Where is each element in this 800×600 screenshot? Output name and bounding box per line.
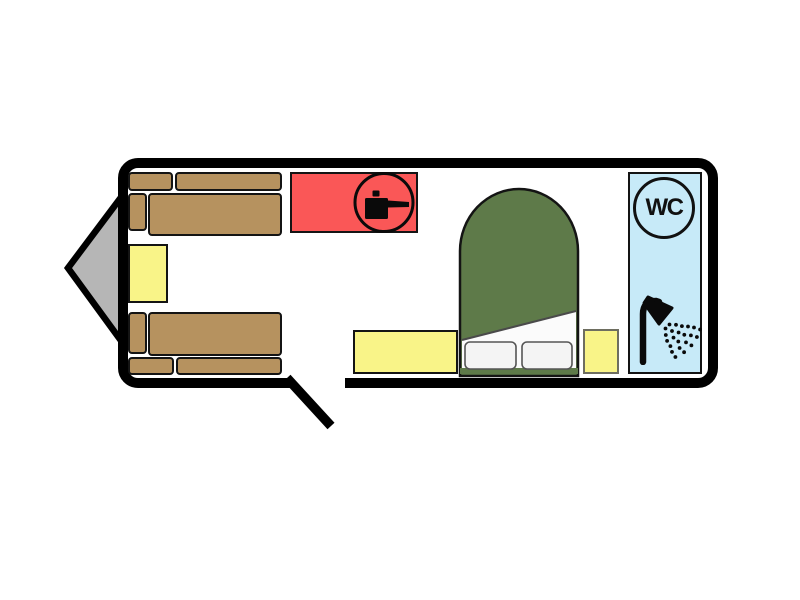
front-sofa-backrest-left — [128, 172, 173, 191]
shower-icon — [632, 293, 704, 365]
front-sofa-backrest-right — [175, 172, 282, 191]
front-sofa-seat — [148, 193, 282, 236]
shower-spray-dots — [664, 323, 702, 359]
rear-sofa-seat — [148, 312, 282, 356]
cooking-pot-icon — [352, 171, 416, 235]
rear-sofa-armrest — [128, 312, 147, 354]
bed-pillow-right — [522, 342, 572, 369]
bedside-wardrobe — [583, 329, 619, 374]
rear-sofa-backrest-right — [176, 357, 282, 375]
bedside-counter — [353, 330, 458, 374]
front-sofa-armrest — [128, 193, 147, 231]
rear-sofa-backrest-left — [128, 357, 174, 375]
wc-badge-icon: WC — [633, 177, 695, 239]
entrance-door-open-icon — [280, 372, 342, 434]
side-cabinet — [128, 244, 168, 303]
caravan-floorplan: WC — [0, 0, 800, 600]
bed-pillow-left — [465, 342, 516, 369]
double-bed — [454, 185, 584, 380]
wc-label: WC — [646, 194, 683, 222]
